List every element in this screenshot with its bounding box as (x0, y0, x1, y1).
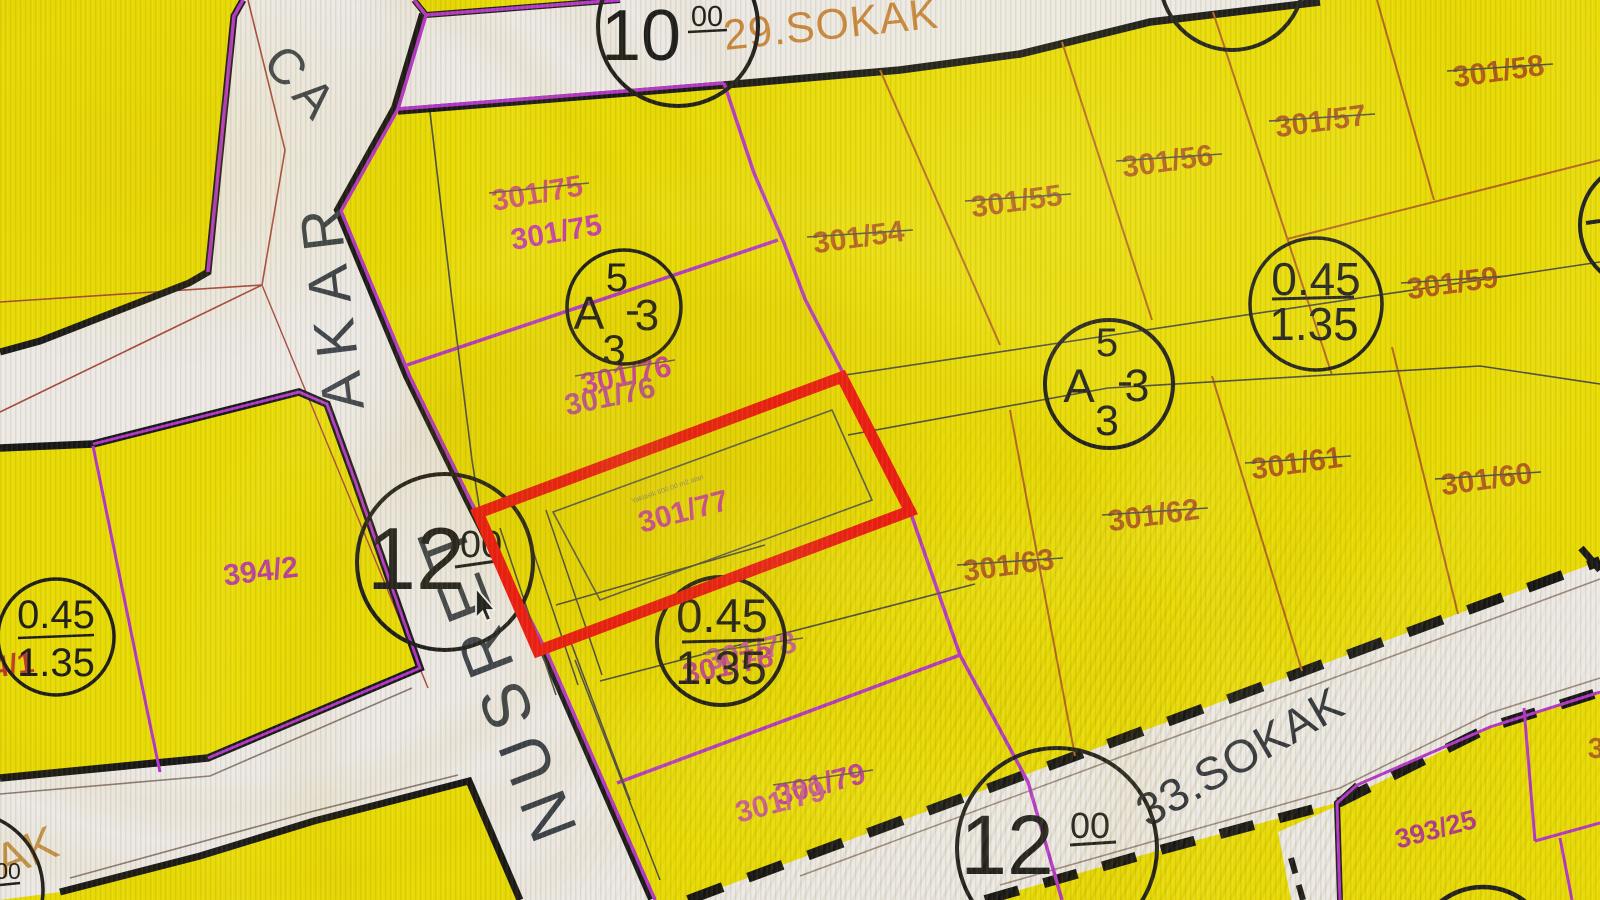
svg-text:3: 3 (635, 291, 659, 340)
svg-text:393/25: 393/25 (1392, 804, 1480, 854)
svg-text:1.35: 1.35 (17, 641, 95, 685)
svg-text:00: 00 (1070, 805, 1110, 846)
svg-text:12: 12 (367, 509, 465, 608)
svg-text:1.35: 1.35 (675, 641, 766, 694)
svg-text:0.45: 0.45 (17, 593, 95, 637)
svg-text:A: A (1063, 359, 1095, 412)
svg-text:394/2: 394/2 (222, 551, 301, 593)
svg-text:301/62: 301/62 (1106, 493, 1201, 538)
svg-text:301/58: 301/58 (1451, 49, 1546, 94)
svg-text:12: 12 (960, 798, 1053, 892)
svg-text:301/54: 301/54 (811, 215, 907, 260)
svg-text:301/57: 301/57 (1273, 99, 1368, 144)
svg-text:301/59: 301/59 (1405, 261, 1500, 306)
svg-text:3: 3 (1095, 397, 1119, 445)
svg-text:1.35: 1.35 (1269, 298, 1359, 350)
svg-text:301/60: 301/60 (1439, 457, 1534, 502)
svg-text:3: 3 (602, 326, 625, 373)
svg-text:A: A (574, 287, 605, 339)
svg-text:301/75: 301/75 (489, 169, 585, 217)
svg-text:301/61: 301/61 (1249, 441, 1344, 486)
svg-text:5: 5 (606, 256, 628, 300)
svg-text:39: 39 (1588, 733, 1600, 765)
svg-text:301/55: 301/55 (969, 179, 1064, 224)
svg-text:301/75: 301/75 (508, 208, 604, 256)
svg-text:301/56: 301/56 (1120, 139, 1215, 184)
svg-text:00: 00 (691, 1, 723, 33)
svg-text:00: 00 (0, 858, 21, 884)
svg-text:5: 5 (1096, 321, 1118, 365)
svg-text:10: 10 (601, 0, 681, 76)
